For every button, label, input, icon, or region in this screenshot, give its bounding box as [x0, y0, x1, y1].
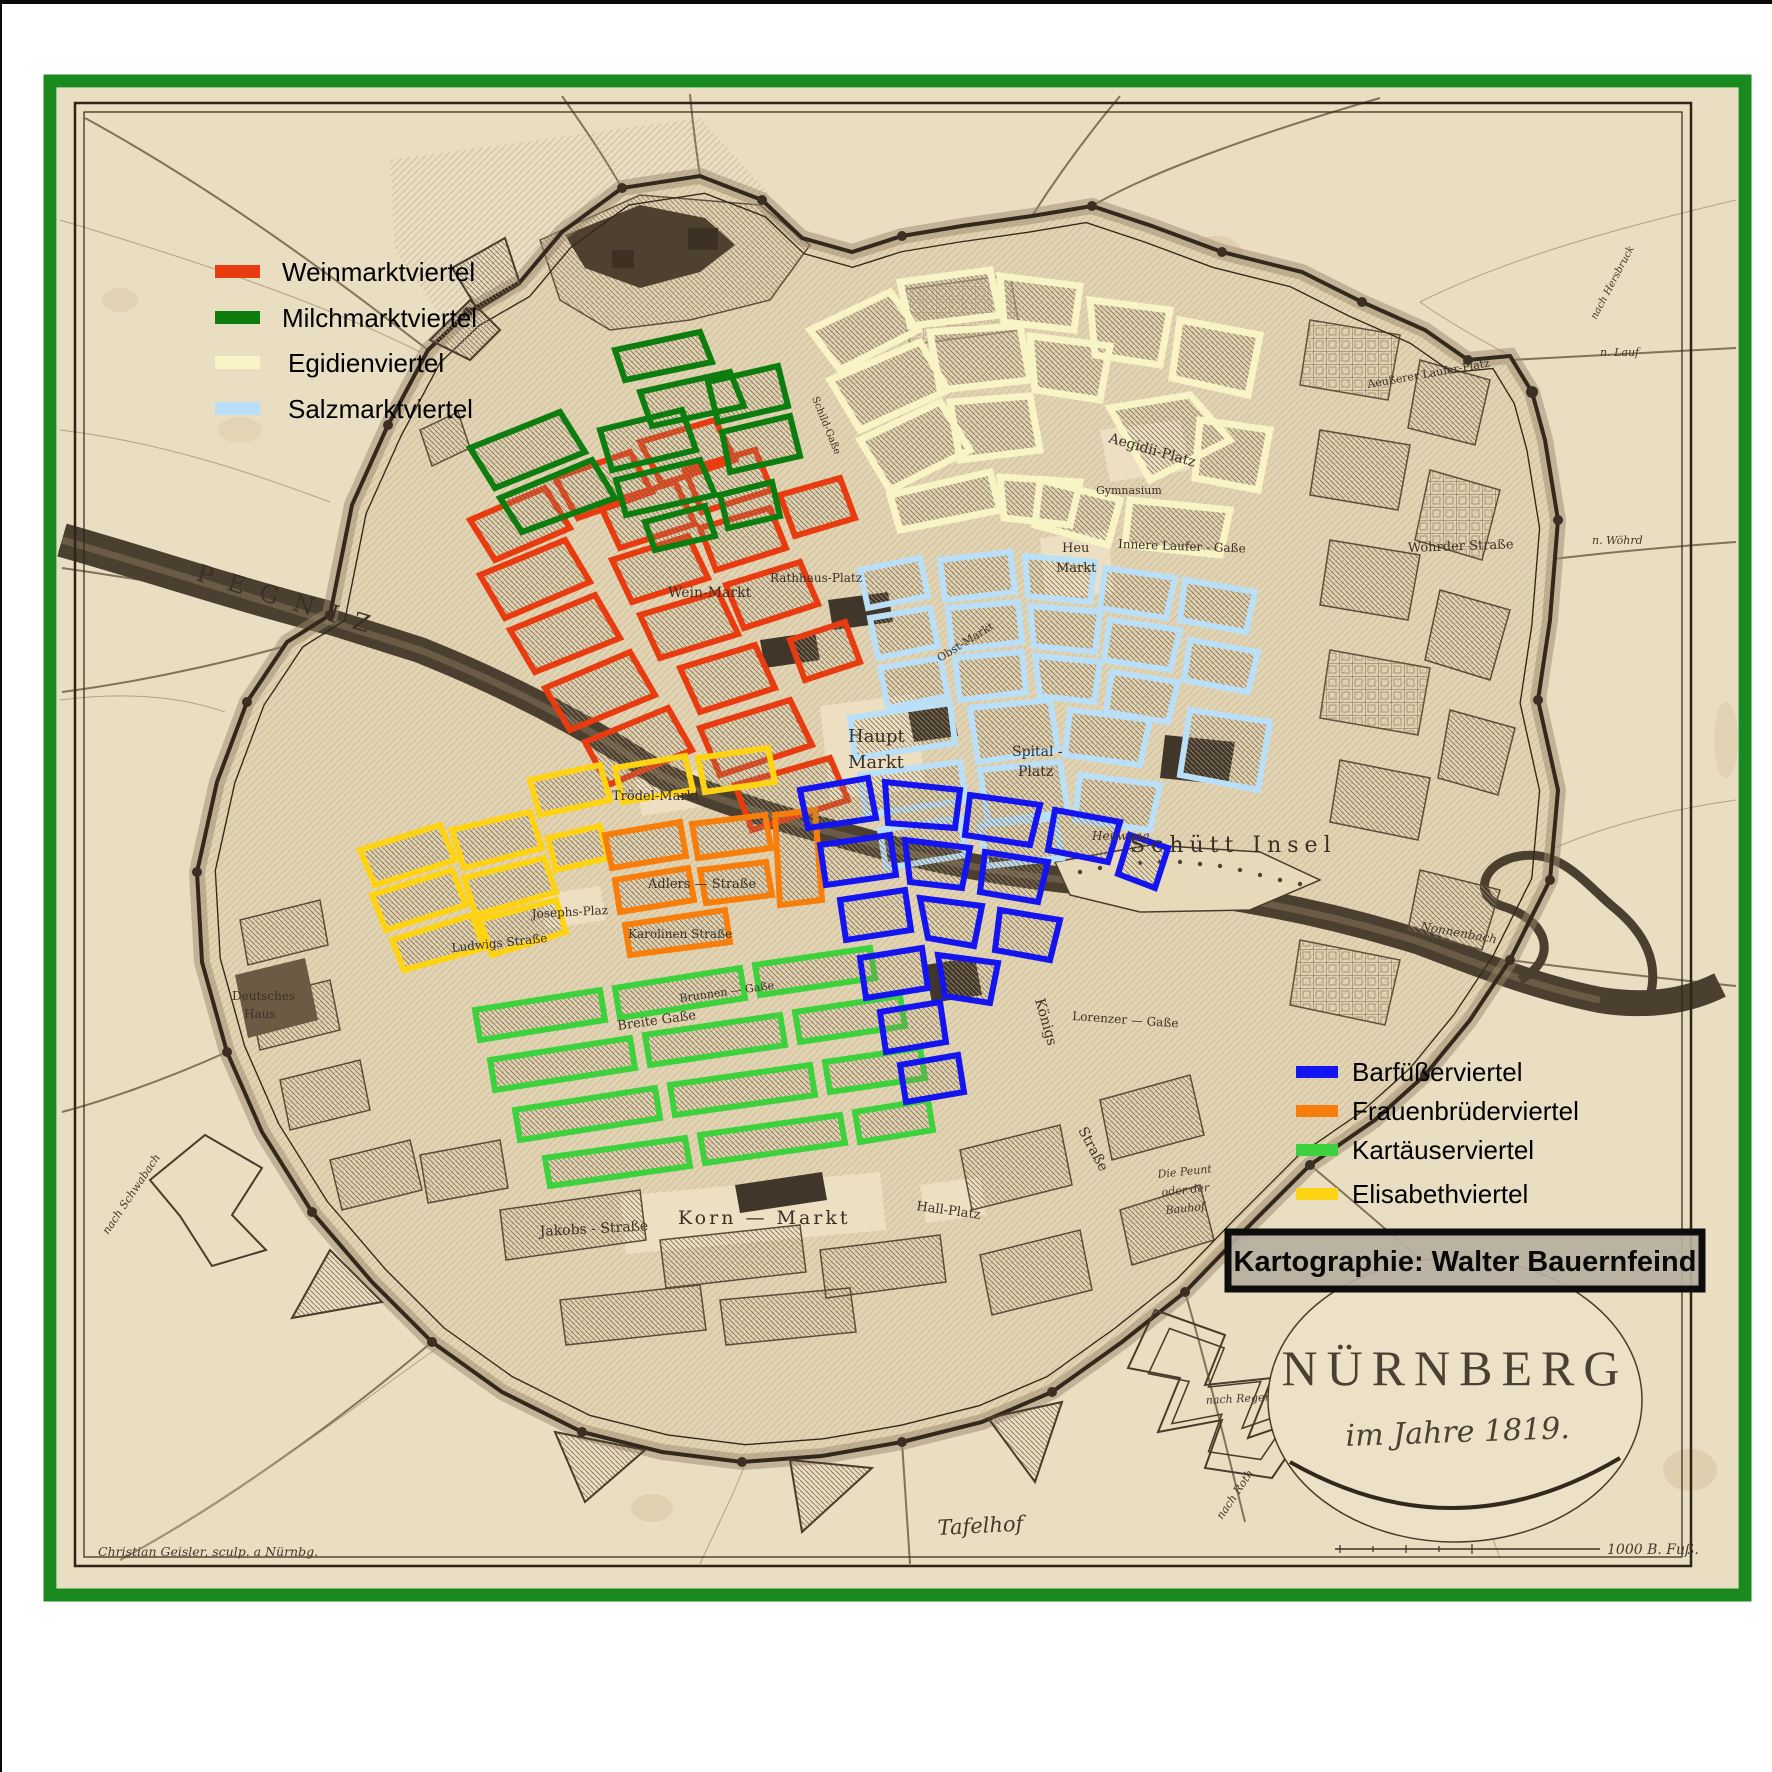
- label-n-lauf: n. Lauf: [1600, 346, 1641, 359]
- legend-swatch-barfuesser: [1296, 1066, 1338, 1078]
- label-haupt-markt-1: Haupt: [848, 726, 906, 747]
- legend-label-barfuesser: Barfüßerviertel: [1352, 1057, 1523, 1087]
- label-adlers-strasse: Adlers — Straße: [647, 877, 756, 892]
- cartouche-title: NÜRNBERG: [1281, 1340, 1628, 1396]
- credit-label: Kartographie: Walter Bauernfeind: [1234, 1246, 1697, 1278]
- label-karolinen-strasse: Karolinen Straße: [628, 927, 732, 941]
- label-tafelhof: Tafelhof: [937, 1511, 1027, 1540]
- legend-swatch-elisabeth: [1296, 1188, 1338, 1200]
- label-korn-markt: Korn — Markt: [678, 1207, 851, 1229]
- legend-swatch-frauenbrueder: [1296, 1105, 1338, 1117]
- scale-label: 1000 B. Fuß.: [1607, 1542, 1699, 1558]
- engraver-signature: Christian Geisler, sculp. a Nürnbg.: [98, 1544, 318, 1559]
- map-canvas: PEGNIZ Haupt Markt Spital - Platz Schütt…: [0, 0, 1772, 1772]
- legend-swatch-egidien: [215, 356, 260, 369]
- label-spital-platz-1: Spital -: [1012, 744, 1063, 760]
- legend-label-kartaeuser: Kartäuserviertel: [1352, 1135, 1534, 1165]
- legend-label-elisabeth: Elisabethviertel: [1352, 1179, 1528, 1209]
- label-deutsches-haus-2: Haus: [244, 1007, 276, 1021]
- label-heu-markt-2: Markt: [1056, 561, 1097, 576]
- label-heu-markt-1: Heu: [1062, 541, 1089, 556]
- legend-swatch-salzmarkt: [215, 402, 260, 415]
- label-schuett-insel: Schütt Insel: [1130, 833, 1337, 858]
- legend-label-egidien: Egidienviertel: [288, 348, 444, 378]
- legend-swatch-weinmarkt: [215, 265, 260, 278]
- legend-label-weinmarkt: Weinmarktviertel: [282, 257, 475, 287]
- label-haupt-markt-2: Markt: [848, 752, 905, 773]
- label-gymnasium: Gymnasium: [1096, 484, 1162, 497]
- label-heuwaag: Heuwaag: [1091, 829, 1150, 843]
- page-left-edge: [0, 0, 2, 1772]
- legend-swatch-kartaeuser: [1296, 1144, 1338, 1156]
- legend-swatch-milchmarkt: [215, 311, 260, 324]
- label-spital-platz-2: Platz: [1018, 764, 1053, 780]
- label-wein-markt: Wein-Markt: [668, 585, 752, 601]
- legend-label-frauenbrueder: Frauenbrüderviertel: [1352, 1096, 1579, 1126]
- label-deutsches-haus-1: Deutsches: [232, 989, 295, 1003]
- page-top-edge: [0, 0, 1772, 4]
- label-troedel-markt: Trödel-Markt: [612, 789, 700, 804]
- legend-label-milchmarkt: Milchmarktviertel: [282, 303, 477, 333]
- title-cartouche: NÜRNBERG im Jahre 1819.: [1268, 1258, 1642, 1542]
- label-n-woehrd: n. Wöhrd: [1592, 534, 1643, 547]
- credit-box: Kartographie: Walter Bauernfeind: [1228, 1232, 1702, 1289]
- label-rathhaus-platz: Rathhaus-Platz: [770, 571, 862, 585]
- legend-label-salzmarkt: Salzmarktviertel: [288, 394, 473, 424]
